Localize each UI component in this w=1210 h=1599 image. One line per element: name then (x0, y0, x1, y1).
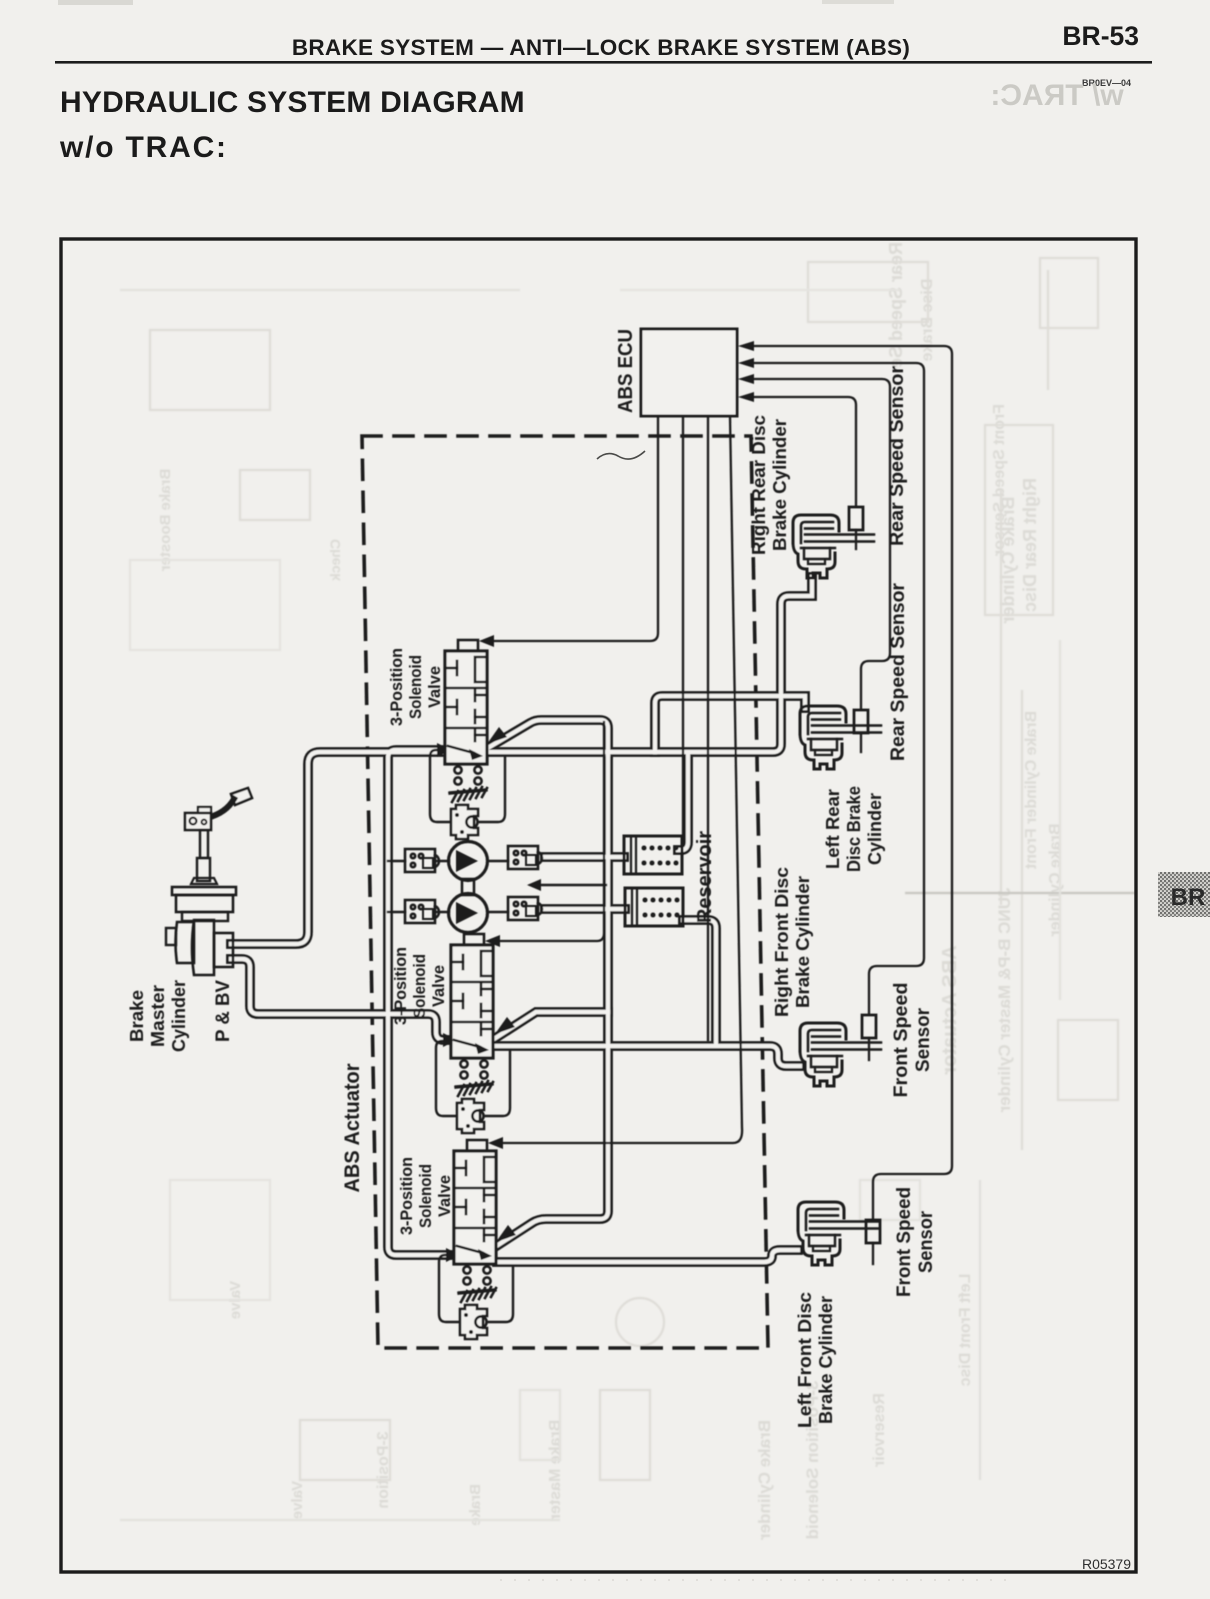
svg-text:Left Rear: Left Rear (823, 789, 843, 869)
svg-text:Valve: Valve (289, 1481, 306, 1519)
svg-text:Right Front Disc: Right Front Disc (772, 867, 792, 1017)
svg-text:BR: BR (1171, 884, 1206, 911)
svg-text:Cylinder: Cylinder (865, 793, 885, 865)
svg-text:ABS Actuator: ABS Actuator (939, 945, 961, 1074)
svg-text:Sensor: Sensor (916, 1210, 937, 1273)
svg-text:R05379: R05379 (1082, 1556, 1131, 1572)
svg-text:Brake: Brake (127, 990, 147, 1042)
svg-text:Brake Cylinder: Brake Cylinder (816, 1296, 836, 1424)
svg-text:P & BV: P & BV (213, 980, 234, 1042)
svg-text:Valve: Valve (429, 965, 448, 1007)
svg-text:Brake Cylinder: Brake Cylinder (1047, 824, 1064, 937)
svg-text:Master: Master (148, 985, 168, 1047)
svg-text:Cylinder: Cylinder (169, 980, 189, 1052)
svg-text:Right Rear Disc: Right Rear Disc (749, 415, 769, 555)
svg-text:Left Front Disc: Left Front Disc (957, 1274, 974, 1387)
svg-text:Brake Cylinder: Brake Cylinder (755, 1420, 774, 1540)
svg-text:JUNC B-P& Master Cylinder: JUNC B-P& Master Cylinder (995, 888, 1014, 1113)
svg-text:Valve: Valve (425, 666, 444, 708)
svg-text:w/o TRAC:: w/o TRAC: (59, 131, 228, 164)
svg-text:Rear Speed Se: Rear Speed Se (886, 242, 906, 368)
svg-text:Brake Cylinder Front: Brake Cylinder Front (1023, 711, 1040, 870)
svg-text:Brake Booster: Brake Booster (157, 469, 174, 572)
svg-text:Solenoid: Solenoid (406, 655, 425, 719)
svg-text:Check: Check (327, 539, 343, 581)
svg-text:3-Position: 3-Position (391, 947, 410, 1025)
svg-text:Front Speed: Front Speed (891, 983, 912, 1098)
svg-text:Right Rear Disc: Right Rear Disc (1020, 478, 1040, 612)
svg-text:Brake Cylinder: Brake Cylinder (770, 419, 790, 551)
svg-text:Valve: Valve (435, 1175, 454, 1217)
svg-text:Front Speed Sensor: Front Speed Sensor (991, 404, 1008, 556)
svg-text:Reservoir: Reservoir (694, 831, 716, 923)
svg-text:w/ TRAC:: w/ TRAC: (990, 79, 1124, 112)
svg-text:Sensor: Sensor (913, 1007, 934, 1072)
svg-text:Disc Brake: Disc Brake (844, 786, 864, 872)
svg-text:Solenoid: Solenoid (416, 1164, 435, 1228)
svg-text:Solenoid: Solenoid (410, 954, 429, 1018)
svg-text:Reservoir: Reservoir (871, 1393, 888, 1467)
svg-text:BRAKE SYSTEM — ANTI—LOCK BRA: BRAKE SYSTEM — ANTI—LOCK BRAKE SYSTEM (A… (292, 35, 910, 60)
svg-text:Front Speed: Front Speed (894, 1187, 915, 1297)
svg-text:ABS Actuator: ABS Actuator (341, 1064, 364, 1193)
svg-text:BR-53: BR-53 (1062, 21, 1139, 51)
svg-text:3-Position: 3-Position (397, 1157, 416, 1235)
svg-text:Brake Cylinder: Brake Cylinder (793, 876, 813, 1008)
svg-text:Brake Master: Brake Master (547, 1420, 564, 1521)
svg-text:Rear Speed Sensor: Rear Speed Sensor (887, 365, 908, 546)
svg-text:Rear Speed Sensor: Rear Speed Sensor (888, 582, 909, 761)
svg-text:ABS ECU: ABS ECU (615, 329, 637, 413)
svg-text:HYDRAULIC SYSTEM DIAGRAM: HYDRAULIC SYSTEM DIAGRAM (60, 86, 525, 119)
svg-text:Left Front Disc: Left Front Disc (795, 1292, 815, 1428)
svg-text:3-Position: 3-Position (387, 648, 406, 726)
